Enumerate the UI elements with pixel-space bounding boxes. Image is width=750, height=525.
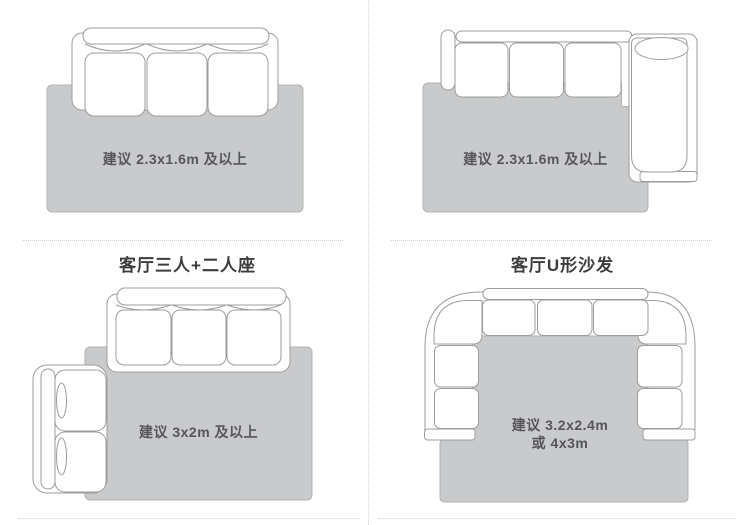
loveseat-back-panel [41, 369, 55, 489]
rug-size-label: 建议 2.3x1.6m 及以上 [47, 151, 303, 167]
seat-cushion [116, 310, 171, 365]
seat-cushion [510, 43, 564, 97]
seat-cushion [208, 53, 268, 116]
vertical-divider [368, 0, 369, 525]
horizontal-divider-mid-left [23, 240, 343, 241]
u-shaped-sofa-diagram [375, 238, 750, 525]
seat-cushion [172, 310, 226, 365]
seat-cushion [227, 310, 281, 365]
chaise-foot-cap [640, 172, 697, 182]
sofa-armrest [441, 30, 455, 90]
seat-cushion [483, 300, 536, 336]
seat-cushion [147, 53, 207, 116]
side-seat-cushion [435, 346, 479, 388]
loveseat-back-pillow [57, 438, 67, 475]
seat-cushion [565, 43, 621, 97]
seat-cushion [85, 53, 145, 116]
section-title: 客厅U形沙发 [375, 256, 750, 276]
seat-cushion [538, 300, 593, 336]
rug [423, 83, 648, 212]
chaise-pillow [635, 38, 688, 60]
horizontal-divider-bottom-left [18, 518, 360, 519]
sofa-back-cushion [117, 288, 286, 305]
side-seat-cushion [638, 346, 683, 388]
section-title: 客厅三人+二人座 [0, 256, 375, 276]
horizontal-divider-mid-right [391, 240, 712, 241]
sofa-back-cushion [83, 28, 269, 44]
three-seat-sofa-diagram [0, 0, 375, 238]
seat-cushion [455, 43, 508, 97]
rug-size-label-line2: 或 4x3m [440, 434, 680, 452]
rug-size-guide: 建议 2.3x1.6m 及以上 建议 2.3x1.6m 及以上 客厅三人+二人座 [0, 0, 750, 525]
horizontal-divider-bottom-right [378, 518, 736, 519]
rug-size-label-line1: 建议 3.2x2.4m [440, 416, 680, 434]
loveseat-back-pillow [57, 383, 67, 418]
three-plus-two-sofa-diagram [0, 238, 375, 525]
sofa-back-rail [483, 289, 648, 300]
rug-size-label: 建议 3x2m 及以上 [85, 424, 312, 440]
seat-cushion [594, 300, 649, 336]
l-shaped-sofa-diagram [375, 0, 750, 238]
sofa-back-rail [456, 31, 632, 42]
rug-size-label: 建议 2.3x1.6m 及以上 [423, 151, 648, 167]
